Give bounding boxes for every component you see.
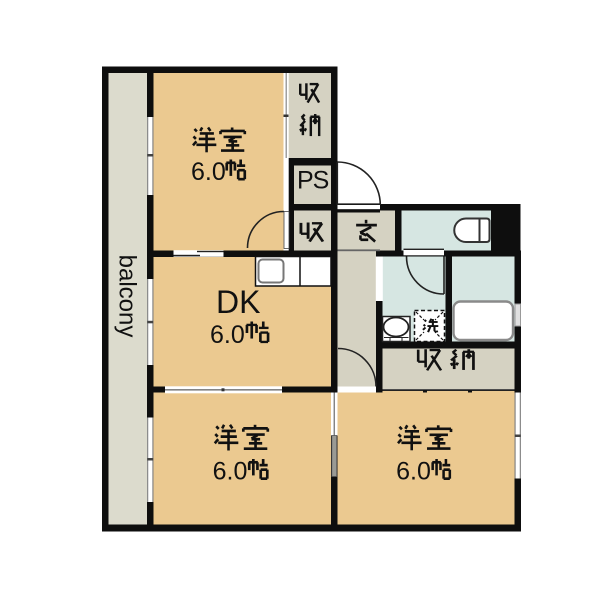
svg-text:PS: PS [297, 167, 329, 195]
svg-text:6.0: 6.0 [191, 158, 226, 186]
svg-text:6.0: 6.0 [396, 458, 431, 486]
svg-text:6.0: 6.0 [213, 458, 248, 486]
svg-text:DK: DK [216, 284, 260, 320]
svg-text:balcony: balcony [114, 255, 141, 338]
svg-text:6.0: 6.0 [210, 321, 245, 349]
